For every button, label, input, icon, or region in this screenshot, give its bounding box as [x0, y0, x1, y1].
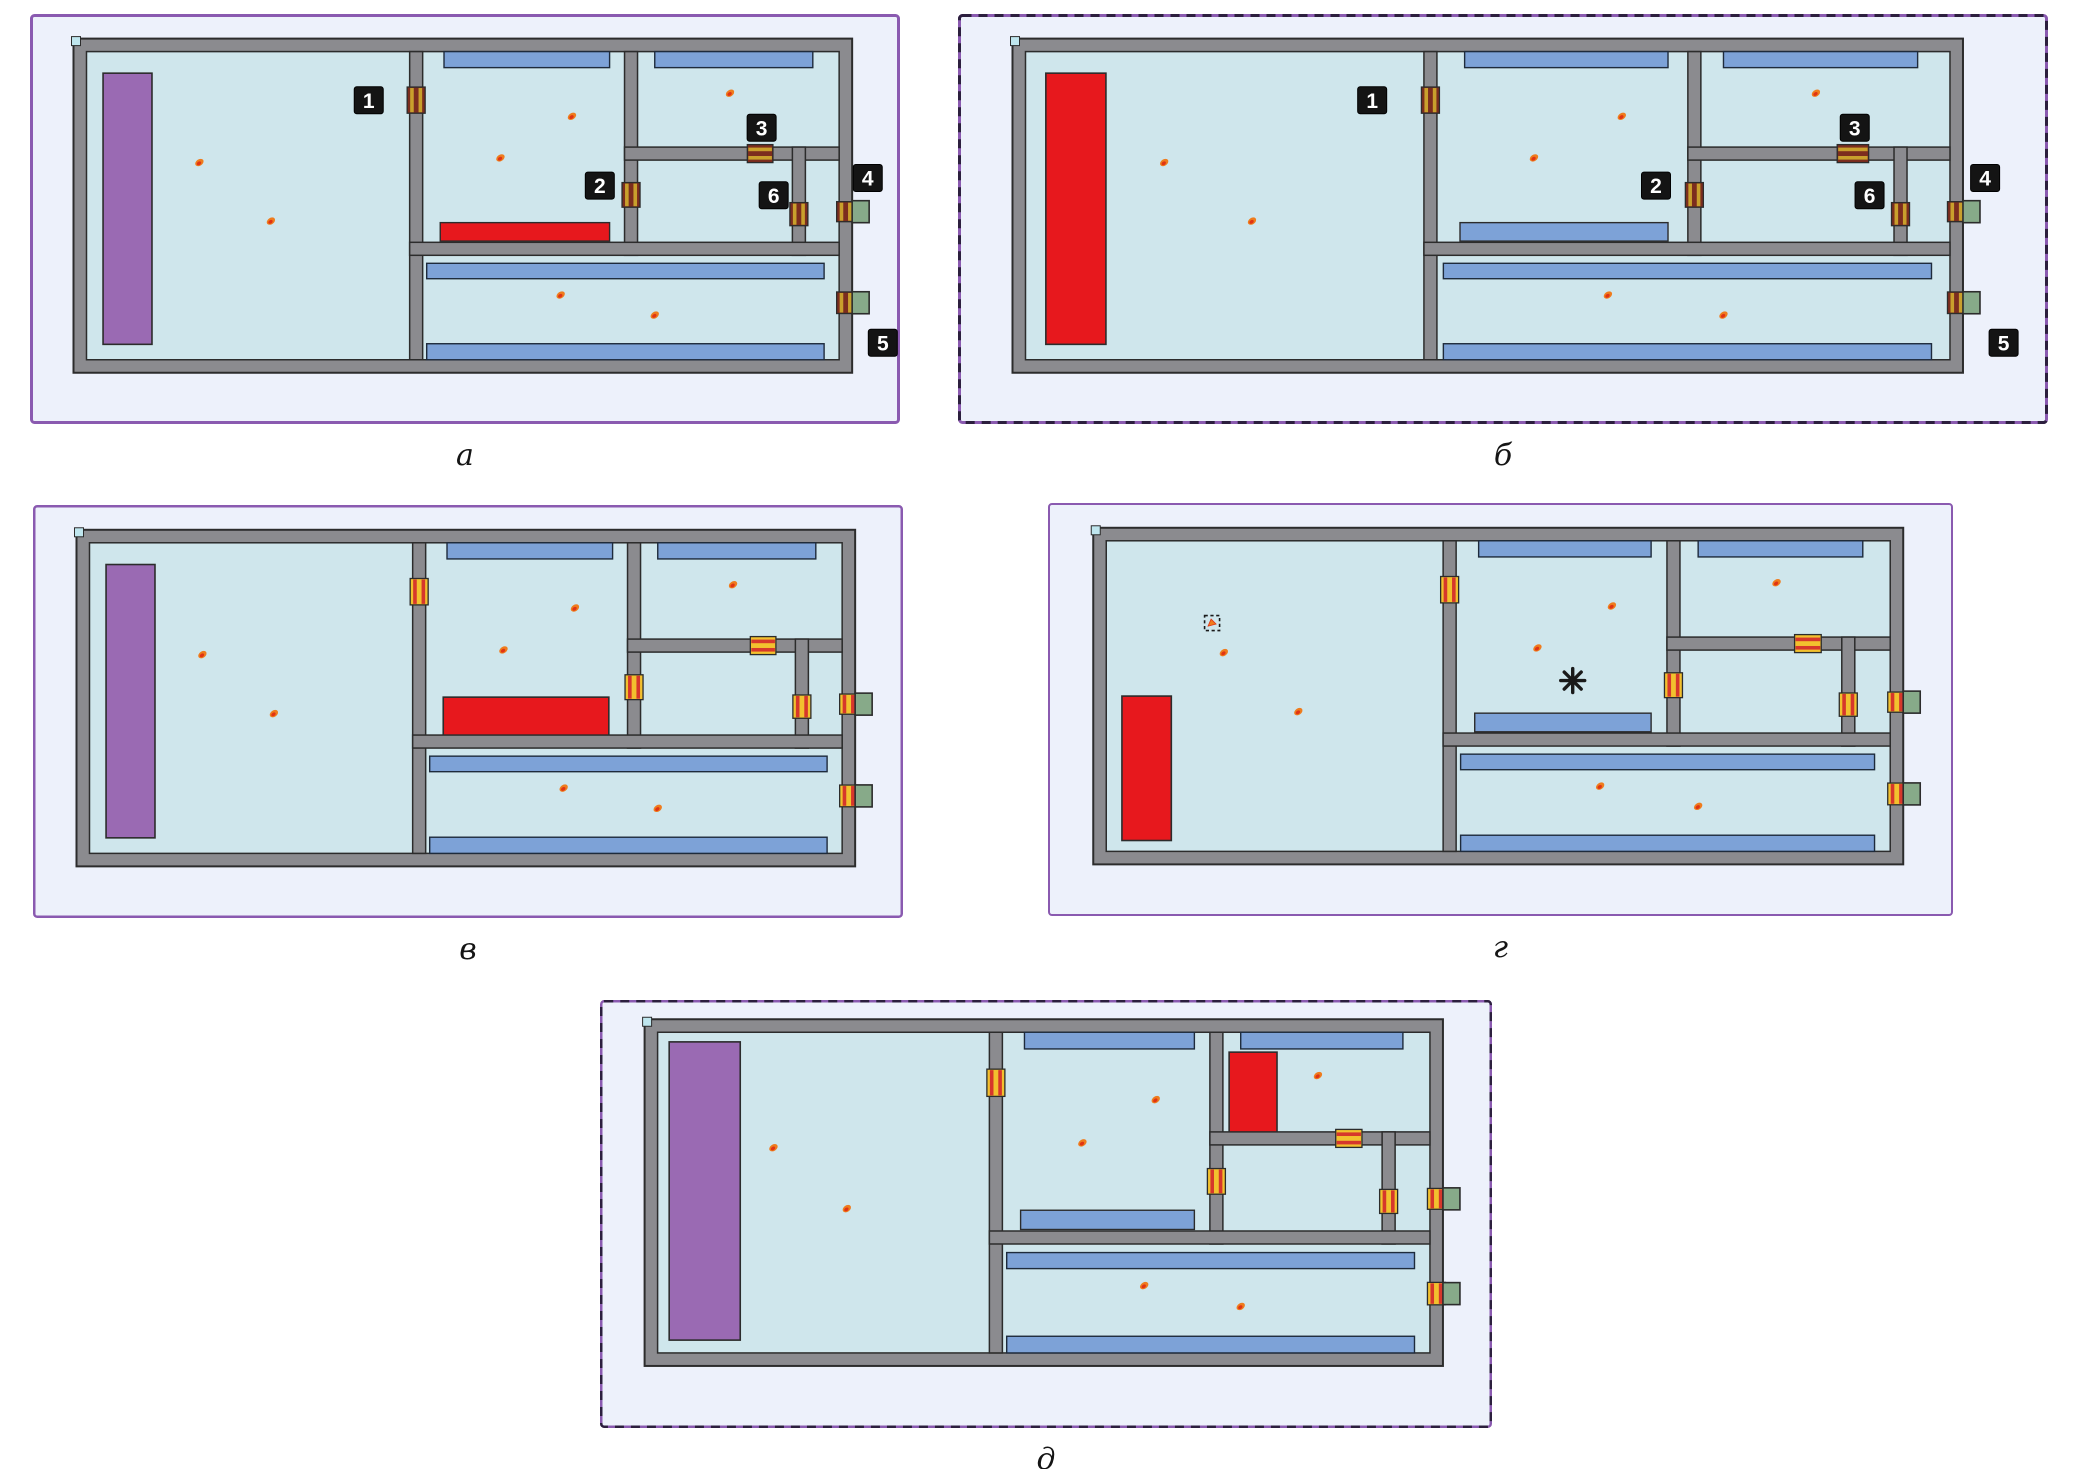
- door-2-stripe: [1210, 1170, 1214, 1194]
- door-3-stripe: [751, 648, 775, 652]
- door-2-stripe: [1688, 184, 1692, 207]
- room2-top-window: [1465, 52, 1668, 68]
- door-5-stripe: [1891, 784, 1895, 804]
- door-4-stripe: [843, 695, 847, 713]
- door-2-stripe: [1667, 674, 1671, 697]
- fire-source: [1122, 696, 1171, 840]
- corridor-top-window: [430, 756, 827, 772]
- callout-5: 5: [1989, 329, 2018, 356]
- door-2-leaf: [622, 183, 640, 208]
- door-6-stripe: [804, 696, 808, 717]
- door-3-stripe: [748, 156, 772, 160]
- door-4-stripe: [1899, 693, 1903, 711]
- figure-canvas: а б в г д 123645123645: [0, 0, 2075, 1469]
- room2-bottom-window: [1460, 223, 1668, 241]
- plan-corner-marker: [1091, 526, 1100, 535]
- wall-vestibule-divider: [1894, 147, 1907, 255]
- callout-1: 1: [354, 87, 383, 114]
- door-3: [1795, 635, 1822, 653]
- exit-block-door-5: [1903, 783, 1920, 805]
- floorplan-panel-g: [1048, 503, 1953, 916]
- stage: [669, 1042, 740, 1340]
- wall-corridor: [1443, 733, 1890, 746]
- door-3: [1837, 145, 1868, 163]
- door-5-stripe: [1430, 1283, 1434, 1303]
- door-1-leaf: [1421, 87, 1439, 113]
- door-3-stripe: [1337, 1141, 1361, 1145]
- wall-vestibule-divider: [1842, 637, 1855, 746]
- door-5-stripe: [1959, 293, 1963, 313]
- door-3: [750, 637, 776, 655]
- door-1-stripe: [1444, 577, 1448, 601]
- exit-block-door-5: [1443, 1283, 1460, 1305]
- door-4-stripe: [851, 695, 855, 713]
- door-3-leaf: [1795, 635, 1822, 653]
- door-3-stripe: [1838, 148, 1867, 152]
- exit-block-door-5: [855, 785, 872, 807]
- door-5-stripe: [840, 293, 844, 313]
- door-5-stripe: [1439, 1283, 1443, 1303]
- room3-top-window: [1723, 52, 1917, 68]
- door-6: [790, 203, 808, 226]
- door-3-leaf: [750, 637, 776, 655]
- door-1-leaf: [410, 578, 428, 604]
- callout-number: 5: [877, 332, 889, 355]
- door-2: [1207, 1169, 1225, 1195]
- floor-area: [1026, 52, 1950, 360]
- door-2-stripe: [636, 676, 640, 699]
- door-3-leaf: [1837, 145, 1868, 163]
- door-3-stripe: [1796, 638, 1821, 642]
- door-6-stripe: [1391, 1190, 1395, 1212]
- wall-vestibule-divider: [792, 147, 805, 255]
- door-2: [625, 675, 643, 700]
- wall-room3-divider: [628, 639, 843, 652]
- door-3: [1336, 1129, 1362, 1147]
- door-1-stripe: [422, 579, 426, 603]
- door-6: [1380, 1189, 1398, 1213]
- callout-number: 6: [768, 185, 780, 208]
- door-1: [407, 87, 425, 113]
- callout-3: 3: [1840, 114, 1869, 141]
- door-6-leaf: [1892, 203, 1910, 226]
- callout-number: 1: [363, 90, 375, 113]
- door-1: [1421, 87, 1439, 113]
- room3-top-window: [1698, 541, 1863, 557]
- wall-room3-divider: [625, 147, 840, 160]
- wall-room3-divider: [1210, 1132, 1430, 1145]
- door-4-stripe: [1959, 203, 1963, 221]
- door-4-stripe: [1891, 693, 1895, 711]
- corridor-top-window: [1007, 1253, 1415, 1269]
- corridor-bottom-window: [1461, 835, 1875, 851]
- callout-2: 2: [585, 172, 614, 199]
- door-1-leaf: [1441, 576, 1459, 602]
- door-1-stripe: [1433, 88, 1437, 112]
- door-2-leaf: [625, 675, 643, 700]
- exit-block-door-4: [1903, 691, 1920, 713]
- room3-top-window: [1241, 1032, 1403, 1049]
- room2-top-window: [444, 52, 610, 68]
- door-2-stripe: [633, 184, 637, 207]
- door-3: [747, 145, 773, 163]
- door-2-leaf: [1207, 1169, 1225, 1195]
- room3-top-window: [658, 543, 816, 559]
- door-6-leaf: [790, 203, 808, 226]
- door-3-leaf: [747, 145, 773, 163]
- corridor-top-window: [1461, 754, 1875, 770]
- floorplan-panel-b: 123645: [958, 14, 2048, 424]
- door-5-stripe: [851, 786, 855, 806]
- door-1-leaf: [407, 87, 425, 113]
- door-5-stripe: [1950, 293, 1954, 313]
- stage: [106, 565, 155, 838]
- exit-block-door-5: [1963, 292, 1980, 314]
- wall-vestibule-divider: [795, 639, 808, 748]
- callout-4: 4: [1971, 164, 2000, 191]
- door-5-stripe: [848, 293, 852, 313]
- door-2: [1685, 183, 1703, 208]
- panel-caption-d: д: [600, 1442, 1492, 1469]
- panel-caption-a: а: [30, 438, 900, 473]
- callout-number: 3: [756, 117, 768, 140]
- wall-room3-divider: [1688, 147, 1950, 160]
- door-4-stripe: [840, 203, 844, 221]
- panel-caption-v: в: [33, 932, 903, 967]
- door-6-stripe: [801, 204, 805, 225]
- callout-number: 6: [1864, 185, 1876, 208]
- door-3-stripe: [751, 640, 775, 644]
- door-6-leaf: [793, 695, 811, 718]
- floor-area: [1106, 541, 1890, 852]
- fire-source: [1229, 1052, 1277, 1132]
- fire-source: [440, 223, 609, 241]
- corridor-bottom-window: [1007, 1336, 1415, 1353]
- door-6-leaf: [1380, 1189, 1398, 1213]
- door-6: [793, 695, 811, 718]
- exit-block-door-4: [852, 201, 869, 223]
- callout-3: 3: [747, 114, 776, 141]
- door-1-stripe: [413, 579, 417, 603]
- floorplan-panel-v: [33, 505, 903, 918]
- wall-corridor: [1424, 242, 1950, 255]
- panel-caption-b: б: [958, 438, 2048, 473]
- corridor-top-window: [427, 263, 824, 278]
- door-6-stripe: [1851, 694, 1855, 715]
- door-6-stripe: [1903, 204, 1907, 225]
- door-3-stripe: [1796, 646, 1821, 650]
- door-2-stripe: [628, 676, 632, 699]
- wall-corridor: [410, 242, 839, 255]
- door-6-stripe: [1895, 204, 1899, 225]
- callout-6: 6: [759, 182, 788, 209]
- panel-caption-g: г: [1048, 930, 1953, 965]
- callout-4: 4: [853, 164, 882, 191]
- door-2-leaf: [1664, 673, 1682, 698]
- door-6: [1892, 203, 1910, 226]
- door-1-stripe: [1452, 577, 1456, 601]
- callout-number: 4: [862, 168, 874, 191]
- door-6-leaf: [1839, 693, 1857, 716]
- corridor-top-window: [1443, 263, 1931, 278]
- wall-corridor: [413, 735, 842, 748]
- floor-area: [658, 1032, 1430, 1353]
- asterisk-marker: [1561, 669, 1585, 693]
- wall-vestibule-divider: [1382, 1132, 1395, 1244]
- door-1-leaf: [987, 1069, 1005, 1096]
- plan-corner-marker: [1011, 37, 1020, 46]
- door-2-stripe: [625, 184, 629, 207]
- door-1: [1441, 576, 1459, 602]
- exit-block-door-4: [1443, 1188, 1460, 1210]
- door-5-stripe: [1899, 784, 1903, 804]
- callout-number: 5: [1998, 332, 2010, 355]
- corridor-bottom-window: [427, 344, 824, 360]
- door-2-stripe: [1219, 1170, 1223, 1194]
- door-2-stripe: [1676, 674, 1680, 697]
- door-2: [622, 183, 640, 208]
- exit-block-door-4: [1963, 201, 1980, 223]
- door-2-stripe: [1697, 184, 1701, 207]
- plan-corner-marker: [72, 37, 81, 46]
- plan-corner-marker: [643, 1017, 652, 1026]
- room3-top-window: [655, 52, 813, 68]
- callout-number: 4: [1979, 168, 1991, 191]
- floor-area: [87, 52, 840, 360]
- door-3-leaf: [1336, 1129, 1362, 1147]
- stage-on-fire: [1046, 73, 1106, 344]
- stage: [103, 73, 152, 344]
- door-6-stripe: [793, 204, 797, 225]
- door-6: [1839, 693, 1857, 716]
- door-4-stripe: [848, 203, 852, 221]
- door-4-stripe: [1430, 1189, 1434, 1208]
- wall-room3-divider: [1667, 637, 1890, 650]
- callout-number: 3: [1849, 117, 1861, 140]
- door-1-stripe: [1424, 88, 1428, 112]
- door-1-stripe: [410, 88, 414, 112]
- wall-corridor: [989, 1231, 1430, 1244]
- door-1-stripe: [990, 1070, 994, 1095]
- room2-top-window: [447, 543, 613, 559]
- plan-corner-marker: [75, 528, 84, 537]
- door-2: [1664, 673, 1682, 698]
- door-5-stripe: [843, 786, 847, 806]
- door-3-stripe: [1337, 1132, 1361, 1136]
- callout-1: 1: [1358, 87, 1387, 114]
- door-3-stripe: [1838, 156, 1867, 160]
- door-6-stripe: [796, 696, 800, 717]
- room2-bottom-window: [1021, 1210, 1195, 1229]
- door-1: [410, 578, 428, 604]
- door-6-stripe: [1842, 694, 1846, 715]
- door-1-stripe: [998, 1070, 1002, 1095]
- callout-2: 2: [1641, 172, 1670, 199]
- fire-source: [443, 697, 609, 736]
- callout-5: 5: [868, 329, 897, 356]
- callout-number: 1: [1366, 90, 1378, 113]
- room2-top-window: [1479, 541, 1651, 557]
- corridor-bottom-window: [1443, 344, 1931, 360]
- floorplan-panel-a: 123645: [30, 14, 900, 424]
- room2-top-window: [1024, 1032, 1194, 1049]
- asterisk-center: [1569, 677, 1576, 684]
- callout-number: 2: [594, 175, 606, 198]
- door-4-stripe: [1950, 203, 1954, 221]
- callout-number: 2: [1650, 175, 1662, 198]
- callout-6: 6: [1855, 182, 1884, 209]
- exit-block-door-5: [852, 292, 869, 314]
- door-1: [987, 1069, 1005, 1096]
- door-2-leaf: [1685, 183, 1703, 208]
- door-1-stripe: [419, 88, 423, 112]
- door-3-stripe: [748, 148, 772, 152]
- corridor-bottom-window: [430, 837, 827, 853]
- door-6-stripe: [1383, 1190, 1387, 1212]
- door-4-stripe: [1439, 1189, 1443, 1208]
- room2-bottom-window: [1475, 713, 1651, 732]
- floorplan-panel-d: [600, 1000, 1492, 1428]
- exit-block-door-4: [855, 693, 872, 715]
